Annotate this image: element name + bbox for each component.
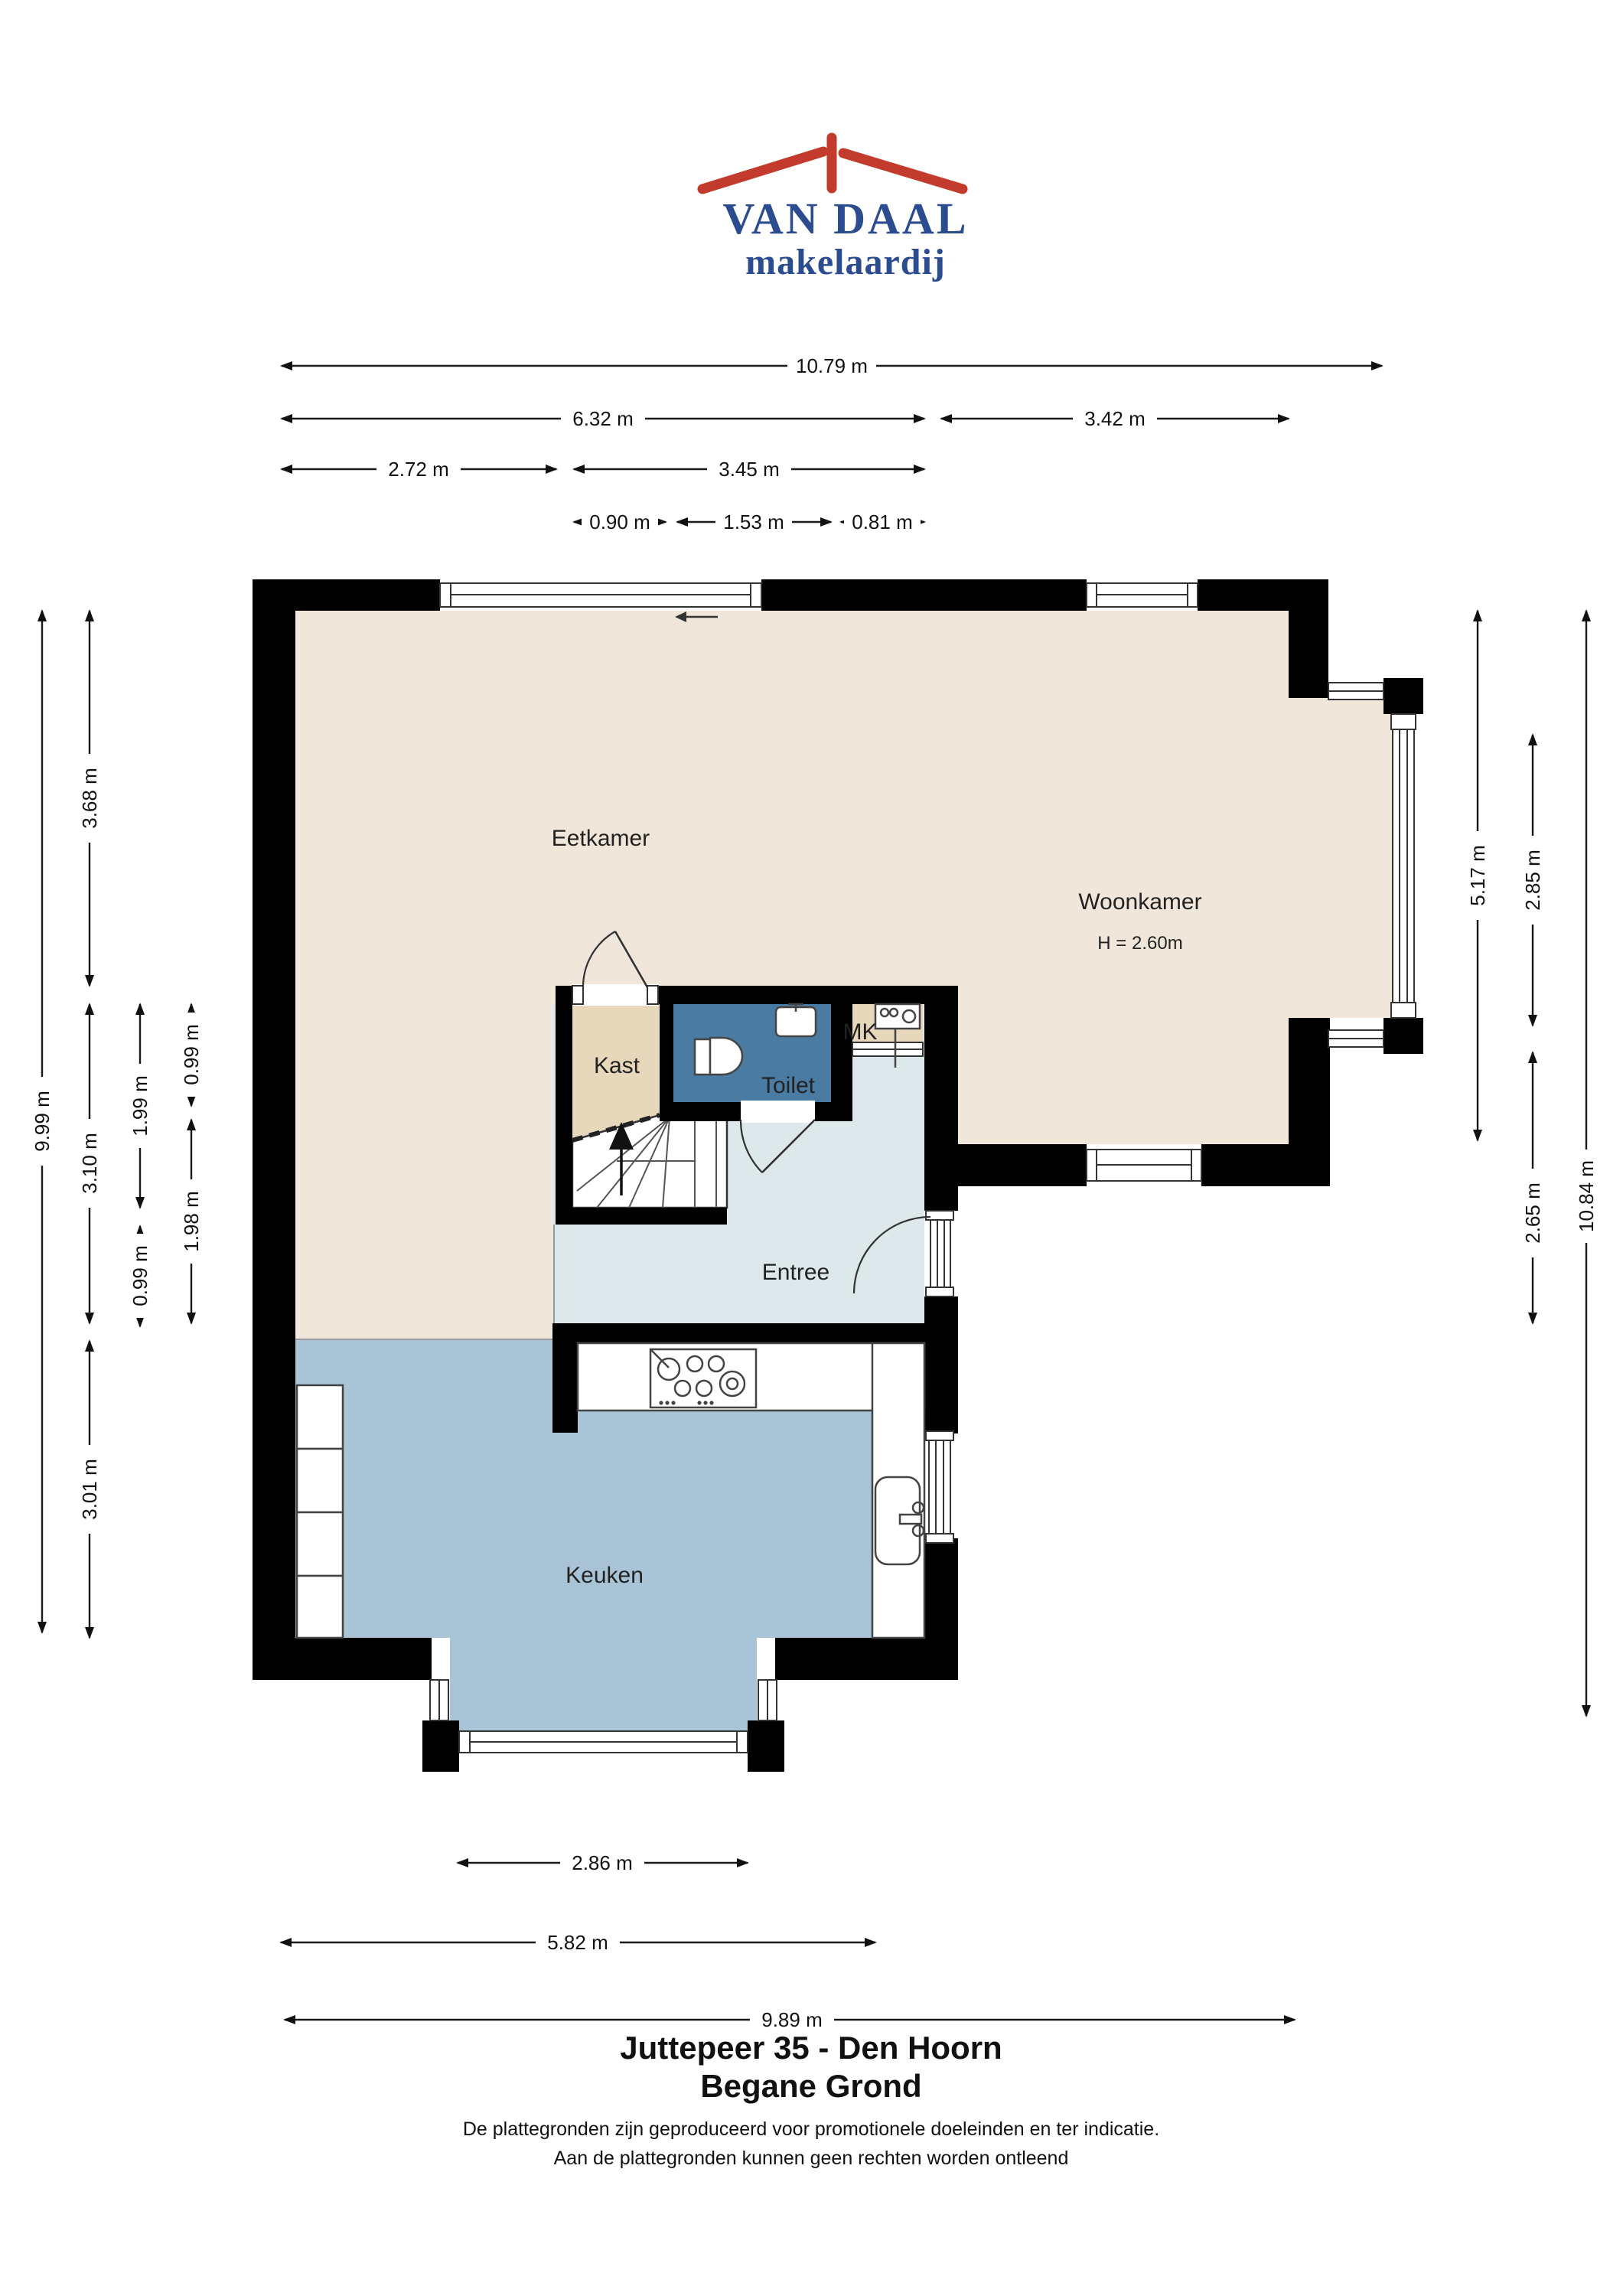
dim-top-6-32: 6.32 m (282, 406, 924, 431)
dim-top-10-79: 10.79 m (282, 354, 1382, 378)
svg-text:1.99 m: 1.99 m (129, 1075, 152, 1137)
svg-text:10.84 m: 10.84 m (1575, 1160, 1598, 1232)
label-mk: MK (843, 1019, 878, 1045)
window-north-right (1087, 583, 1198, 607)
wall-north-c (1198, 579, 1328, 611)
svg-text:9.89 m: 9.89 m (761, 2008, 823, 2031)
svg-text:3.01 m: 3.01 m (78, 1459, 101, 1520)
dim-right-2-85: 2.85 m (1520, 735, 1545, 1026)
svg-text:10.79 m: 10.79 m (796, 354, 868, 377)
label-entree: Entree (762, 1260, 829, 1285)
svg-text:3.68 m: 3.68 m (78, 768, 101, 829)
dim-top-0-90: 0.90 m (574, 510, 666, 534)
dim-top-2-72: 2.72 m (282, 457, 556, 481)
disclaimer-line-1: De plattegronden zijn geproduceerd voor … (463, 2118, 1159, 2140)
dim-left-1-98: 1.98 m (179, 1120, 204, 1323)
svg-text:2.72 m: 2.72 m (388, 458, 449, 481)
svg-text:0.90 m: 0.90 m (589, 510, 650, 533)
window-bay-top (1328, 683, 1383, 700)
wall-closet-west (556, 1004, 572, 1208)
wall-stairs-bottom (556, 1208, 727, 1225)
svg-text:2.65 m: 2.65 m (1521, 1182, 1544, 1244)
wall-toilet-south-a (660, 1102, 741, 1121)
roof-left-slope (702, 152, 823, 189)
svg-text:0.99 m: 0.99 m (180, 1024, 203, 1085)
window-bay-east (1391, 714, 1416, 1018)
dim-bottom-5-82: 5.82 m (281, 1930, 875, 1955)
wall-south-left (253, 1638, 432, 1680)
svg-text:9.99 m: 9.99 m (31, 1091, 54, 1152)
agency-logo: VAN DAAL makelaardij (702, 138, 969, 282)
window-north-left (440, 583, 761, 607)
svg-text:0.99 m: 0.99 m (129, 1245, 152, 1306)
svg-text:2.85 m: 2.85 m (1521, 850, 1544, 911)
dim-left-1-99: 1.99 m (128, 1004, 152, 1208)
svg-text:6.32 m: 6.32 m (572, 407, 634, 430)
label-kast: Kast (594, 1053, 640, 1078)
window-bay-bottom (1328, 1030, 1383, 1047)
dim-bottom-9-89: 9.89 m (285, 2007, 1295, 2032)
wall-closet-block-top-b (658, 986, 924, 1004)
dimensions-top: 10.79 m 6.32 m 3.42 m 2.72 m 3.45 m 0.90… (282, 354, 1382, 534)
dim-right-10-84: 10.84 m (1574, 611, 1599, 1716)
stove-icon (650, 1349, 756, 1407)
plan-title: Juttepeer 35 - Den Hoorn (620, 2030, 1002, 2066)
window-kitchen-east (926, 1431, 953, 1543)
svg-text:5.82 m: 5.82 m (547, 1931, 608, 1954)
kitchen-sink-icon (875, 1477, 924, 1564)
dim-top-3-42: 3.42 m (941, 406, 1289, 431)
window-bump-left (430, 1680, 448, 1720)
footer: Juttepeer 35 - Den Hoorn Begane Grond De… (463, 2030, 1159, 2169)
dimensions-right: 5.17 m 2.85 m 2.65 m 10.84 m (1465, 611, 1599, 1716)
wall-bump-pillar-left (422, 1720, 459, 1772)
wall-northeast-step (1289, 611, 1328, 698)
svg-text:2.86 m: 2.86 m (572, 1851, 633, 1874)
dimensions-bottom: 2.86 m 5.82 m 9.89 m (281, 1851, 1295, 2032)
svg-text:5.17 m: 5.17 m (1466, 845, 1489, 906)
label-woonkamer-height: H = 2.60m (1097, 933, 1182, 954)
wall-bay-pillar-top (1383, 678, 1423, 714)
plan-floor-name: Begane Grond (700, 2068, 921, 2104)
door-toilet-opening (741, 1101, 815, 1123)
dim-left-3-01: 3.01 m (77, 1341, 102, 1638)
window-livingroom-south (1087, 1150, 1201, 1181)
wall-north-b (761, 579, 1087, 611)
wall-bump-pillar-right (748, 1720, 784, 1772)
svg-text:1.53 m: 1.53 m (723, 510, 784, 533)
dim-right-5-17: 5.17 m (1465, 611, 1490, 1140)
wall-south-right (775, 1638, 958, 1680)
label-toilet: Toilet (761, 1073, 816, 1098)
svg-text:0.81 m: 0.81 m (852, 510, 913, 533)
door-closet-opening (572, 984, 658, 1006)
wall-east-below-bay (1289, 1018, 1330, 1186)
dim-bottom-2-86: 2.86 m (458, 1851, 748, 1875)
wall-bay-pillar-bottom (1383, 1018, 1423, 1054)
dim-top-0-81: 0.81 m (841, 510, 924, 534)
logo-tagline-text: makelaardij (745, 242, 946, 282)
wall-livingroom-south-a (958, 1144, 1087, 1186)
logo-brand-text: VAN DAAL (722, 194, 968, 243)
logo-roof-icon (702, 138, 963, 189)
dim-left-0-99-lower: 0.99 m (128, 1226, 152, 1326)
wall-entree-east-corner (924, 1144, 958, 1213)
dim-left-9-99: 9.99 m (30, 611, 54, 1632)
dimensions-left: 9.99 m 3.68 m 3.10 m 3.01 m 1.99 m 0.99 … (30, 611, 204, 1638)
toilet-bowl-icon (695, 1038, 742, 1075)
dim-right-2-65: 2.65 m (1520, 1052, 1545, 1323)
svg-text:3.10 m: 3.10 m (78, 1133, 101, 1194)
label-keuken: Keuken (565, 1563, 644, 1588)
wall-entree-east-upper (924, 986, 958, 1144)
label-woonkamer: Woonkamer (1078, 889, 1201, 915)
kitchen-cabinets (297, 1385, 343, 1638)
window-bump-front (459, 1731, 748, 1753)
disclaimer-line-2: Aan de plattegronden kunnen geen rechten… (554, 2148, 1069, 2169)
roof-right-slope (843, 153, 963, 189)
wall-toilet-south-b (815, 1102, 852, 1121)
dim-top-1-53: 1.53 m (677, 510, 831, 534)
wall-closet-block-top-a (556, 986, 572, 1004)
svg-text:1.98 m: 1.98 m (180, 1191, 203, 1252)
wall-entree-kitchen (552, 1323, 924, 1343)
window-bump-right (758, 1680, 777, 1720)
floorplan-canvas: VAN DAAL makelaardij (0, 0, 1623, 2296)
dim-left-3-10: 3.10 m (77, 1004, 102, 1323)
dim-left-0-99-upper: 0.99 m (179, 1004, 204, 1106)
svg-text:3.42 m: 3.42 m (1084, 407, 1146, 430)
wall-livingroom-south-b (1201, 1144, 1289, 1186)
toilet-sink-icon (776, 1004, 816, 1036)
dim-top-3-45: 3.45 m (574, 457, 924, 481)
wall-east-between-door-window (924, 1293, 958, 1433)
wall-west (253, 579, 295, 1680)
wall-kitchen-stub (552, 1343, 578, 1433)
floorplan-page: VAN DAAL makelaardij (0, 0, 1623, 2296)
label-eetkamer: Eetkamer (552, 826, 650, 851)
svg-text:3.45 m: 3.45 m (719, 458, 780, 481)
dim-left-3-68: 3.68 m (77, 611, 102, 986)
wall-closet-toilet (660, 1004, 673, 1102)
